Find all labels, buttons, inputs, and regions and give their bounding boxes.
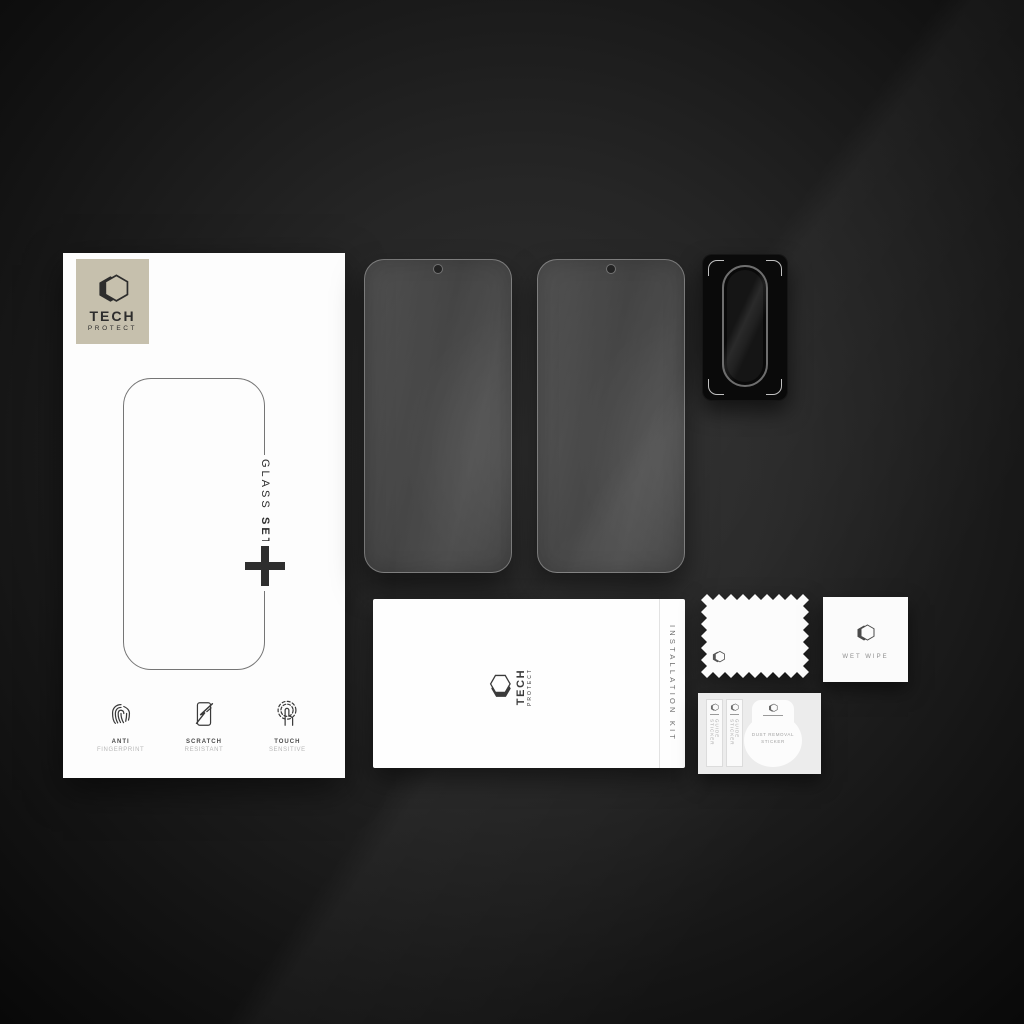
brand-name-bottom: PROTECT (527, 668, 533, 706)
sticker-card: GUIDE STICKER GUIDE STICKER DUST REMOVAL… (698, 693, 821, 774)
punch-hole-camera-cutout (434, 265, 442, 273)
feature-row: ANTI FINGERPRINT SCRATCH RESISTANT TOU (79, 699, 329, 753)
feature-subtitle: FINGERPRINT (83, 747, 159, 753)
dust-removal-label: DUST REMOVAL STICKER (744, 732, 802, 746)
brand-hexagon-icon (488, 674, 514, 701)
brand-name-top: TECH (89, 308, 135, 324)
installation-kit-label: INSTALLATION KIT (660, 599, 685, 768)
dust-removal-line2: STICKER (744, 739, 802, 746)
corner-bracket-icon (766, 379, 782, 395)
dust-removal-sticker-tab (752, 700, 794, 728)
brand-hexagon-icon (730, 703, 739, 712)
guide-sticker-label: GUIDE STICKER (730, 719, 740, 766)
product-photo-stage: TECH PROTECT GLASS SET ANT (0, 0, 1024, 1024)
guide-sticker-label: GUIDE STICKER (710, 719, 720, 766)
fingerprint-icon (106, 699, 136, 729)
touch-sensitive-icon (272, 699, 302, 729)
plus-icon (243, 541, 287, 591)
corner-bracket-icon (766, 260, 782, 276)
brand-logo-plate: TECH PROTECT (76, 259, 149, 344)
glass-set-word1: GLASS (259, 459, 271, 511)
feature-title: SCRATCH (166, 739, 242, 745)
lens-pill-window (722, 265, 768, 387)
feature-touch-sensitive: TOUCH SENSITIVE (249, 699, 325, 753)
corner-bracket-icon (708, 260, 724, 276)
brand-hexagon-icon (95, 272, 131, 306)
camera-lens-protector (702, 254, 788, 401)
phone-outline-drawing (123, 378, 265, 670)
feature-subtitle: RESISTANT (166, 747, 242, 753)
feature-subtitle: SENSITIVE (249, 747, 325, 753)
feature-anti-fingerprint: ANTI FINGERPRINT (83, 699, 159, 753)
wet-wipe-label: WET WIPE (842, 654, 888, 660)
zigzag-cloth-shape (701, 594, 809, 678)
glass-set-label: GLASS SET (256, 455, 274, 551)
divider (763, 715, 783, 716)
brand-logo-rotated: TECH PROTECT (470, 647, 550, 727)
brand-hexagon-icon (855, 623, 876, 643)
brand-hexagon-icon (768, 703, 778, 713)
divider (730, 714, 739, 715)
scratch-resistant-icon (189, 699, 219, 729)
punch-hole-camera-cutout (607, 265, 615, 273)
guide-sticker-strip-2: GUIDE STICKER (726, 699, 743, 767)
feature-title: TOUCH (249, 739, 325, 745)
retail-box: TECH PROTECT GLASS SET ANT (63, 253, 345, 778)
brand-name-top: TECH (515, 669, 527, 705)
guide-sticker-strip-1: GUIDE STICKER (706, 699, 723, 767)
dust-removal-line1: DUST REMOVAL (744, 732, 802, 739)
corner-bracket-icon (708, 379, 724, 395)
feature-title: ANTI (83, 739, 159, 745)
brand-name-bottom: PROTECT (88, 325, 137, 332)
brand-hexagon-icon (710, 703, 719, 712)
feature-scratch-resistant: SCRATCH RESISTANT (166, 699, 242, 753)
brand-hexagon-icon (711, 650, 726, 664)
divider (710, 714, 719, 715)
installation-kit-envelope: TECH PROTECT INSTALLATION KIT (373, 599, 685, 768)
wet-wipe-packet: WET WIPE (823, 597, 908, 682)
tempered-glass-sheet-2 (537, 259, 685, 573)
microfiber-cloth (701, 594, 809, 678)
tempered-glass-sheet-1 (364, 259, 512, 573)
